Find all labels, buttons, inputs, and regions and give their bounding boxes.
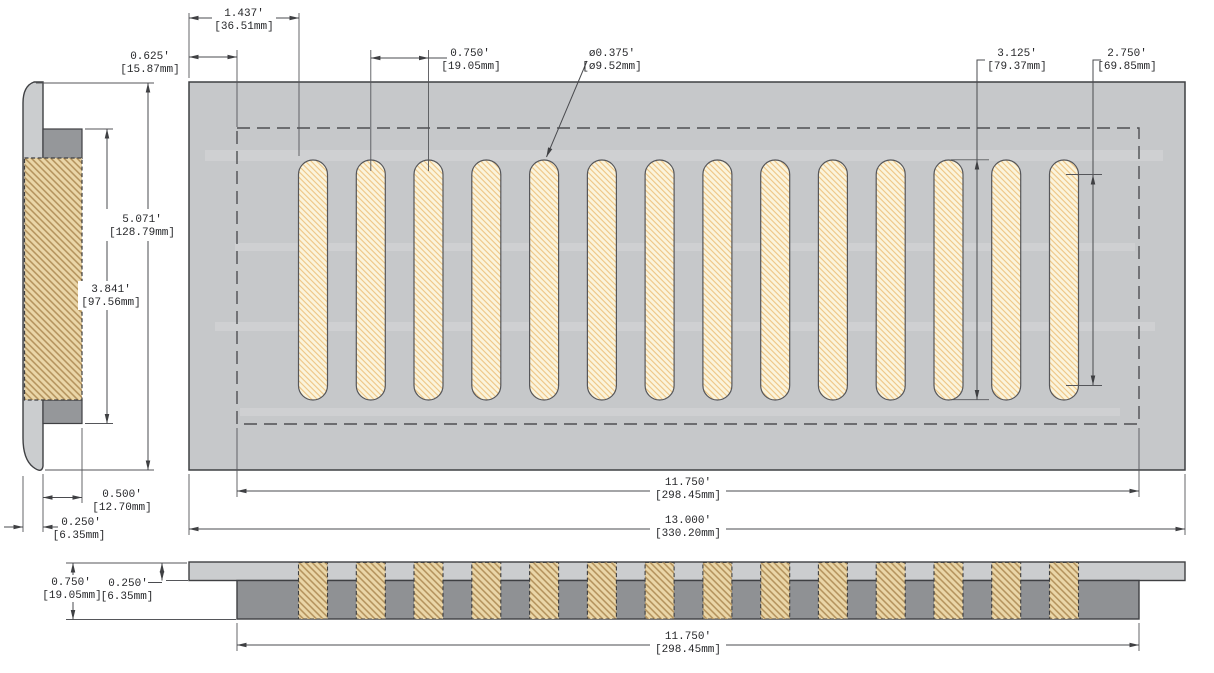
dim-label: [69.85mm] [1097, 61, 1156, 73]
vent-slot [299, 160, 328, 400]
vent-slot [934, 160, 963, 400]
slot-section-strip [414, 563, 443, 620]
vent-slot [645, 160, 674, 400]
dim-label: 0.500' [102, 489, 142, 501]
frame-block-top [43, 129, 82, 159]
slot-section-strip [472, 563, 501, 620]
dim-label: [12.70mm] [92, 502, 151, 514]
vent-slot [530, 160, 559, 400]
dim-label: [298.45mm] [655, 490, 721, 502]
slot-section-strip [992, 563, 1021, 620]
vent-slot [703, 160, 732, 400]
frame-block-bottom [43, 400, 82, 424]
vent-slot [761, 160, 790, 400]
dim-label: 2.750' [1107, 48, 1147, 60]
faceplate-profile [189, 562, 1185, 581]
dim-label: [ø9.52mm] [582, 61, 641, 73]
dim-label: [6.35mm] [101, 591, 154, 603]
dim-label: [15.87mm] [120, 64, 179, 76]
dim-label: [330.20mm] [655, 528, 721, 540]
dim-label: 5.071' [122, 214, 162, 226]
slot-section-strip [1050, 563, 1079, 620]
dim-label: 0.250' [108, 578, 148, 590]
dim-label: 0.750' [51, 577, 91, 589]
slot-section-strip [818, 563, 847, 620]
vent-slot [472, 160, 501, 400]
dim-label: 0.750' [450, 48, 490, 60]
dim-label: 0.625' [130, 51, 170, 63]
slot-section-strip [587, 563, 616, 620]
side-section-view [23, 82, 82, 470]
vent-slot [587, 160, 616, 400]
dim-label: [19.05mm] [441, 61, 500, 73]
dim-label: [79.37mm] [987, 61, 1046, 73]
dim-label: [128.79mm] [109, 227, 175, 239]
dim-label: 3.841' [91, 284, 131, 296]
vent-technical-drawing: 1.437' [36.51mm] 0.625' [15.87mm] 0.750'… [0, 0, 1214, 673]
drawing-svg: 1.437' [36.51mm] 0.625' [15.87mm] 0.750'… [0, 0, 1214, 673]
dim-label: 0.250' [61, 517, 101, 529]
dim-label: [298.45mm] [655, 644, 721, 656]
vent-slot [414, 160, 443, 400]
dim-label: [6.35mm] [53, 530, 106, 542]
dim-label: [36.51mm] [214, 21, 273, 33]
vent-slot [1050, 160, 1079, 400]
vent-slot [356, 160, 385, 400]
dim-label: 1.437' [224, 8, 264, 20]
dim-label: ø0.375' [589, 48, 635, 60]
slot-section-strip [934, 563, 963, 620]
dim-label: [19.05mm] [42, 590, 101, 602]
vent-slot [818, 160, 847, 400]
slot-section-strip [299, 563, 328, 620]
dim-label: 11.750' [665, 477, 711, 489]
dim-label: [97.56mm] [81, 297, 140, 309]
dim-label: 3.125' [997, 48, 1037, 60]
vent-slot [992, 160, 1021, 400]
wood-insert-section [25, 158, 83, 400]
slot-section-strip [645, 563, 674, 620]
slot-section-strip [530, 563, 559, 620]
slot-section-strip [703, 563, 732, 620]
dim-label: 13.000' [665, 515, 711, 527]
bottom-section-view [189, 562, 1185, 619]
slot-section-strip [356, 563, 385, 620]
slot-section-strip [876, 563, 905, 620]
slot-section-strip [761, 563, 790, 620]
front-view [189, 82, 1185, 470]
vent-slot [876, 160, 905, 400]
dim-label: 11.750' [665, 631, 711, 643]
